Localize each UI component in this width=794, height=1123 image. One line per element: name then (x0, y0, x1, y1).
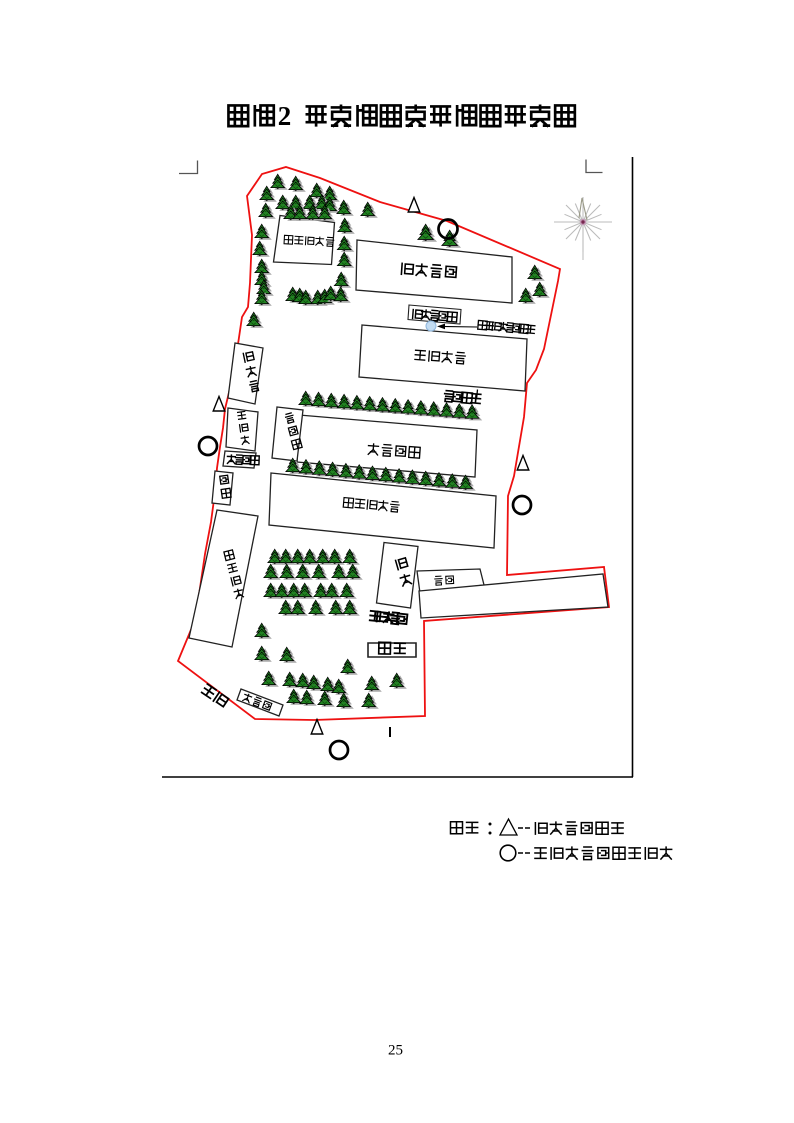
svg-text:25: 25 (388, 1043, 403, 1059)
svg-text:2: 2 (278, 101, 292, 131)
